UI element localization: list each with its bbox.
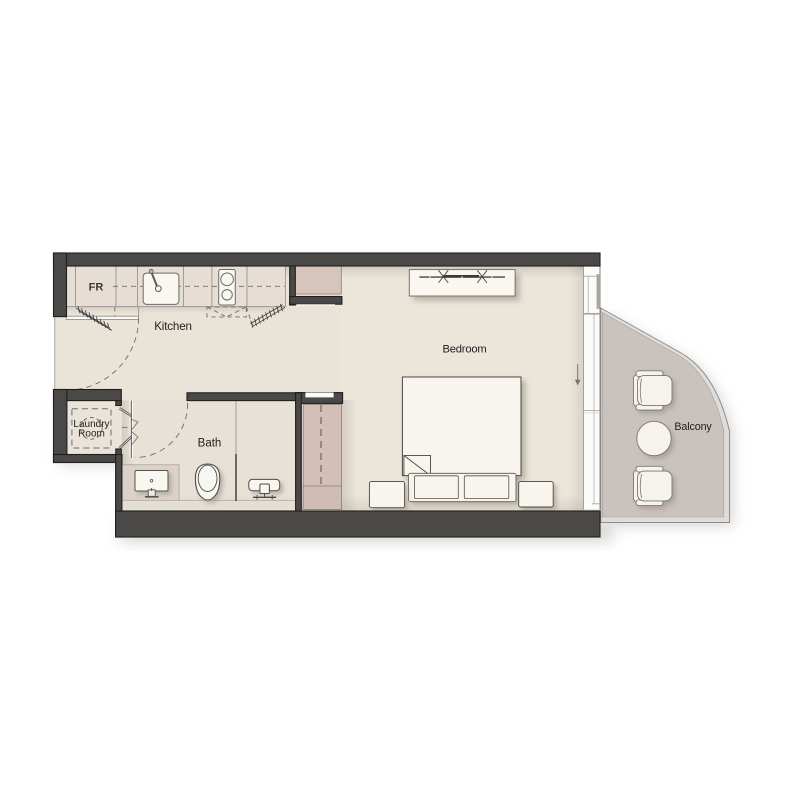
svg-text:FR: FR: [89, 282, 104, 294]
svg-text:Kitchen: Kitchen: [154, 320, 192, 333]
svg-text:Bedroom: Bedroom: [443, 343, 487, 355]
svg-text:Room: Room: [78, 429, 105, 440]
svg-text:Bath: Bath: [198, 437, 222, 449]
svg-text:Balcony: Balcony: [674, 421, 712, 433]
